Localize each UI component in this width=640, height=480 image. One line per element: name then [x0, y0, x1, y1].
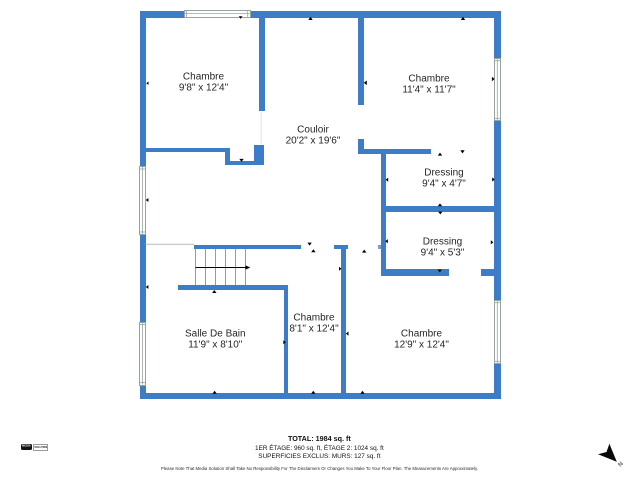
svg-text:N: N: [618, 461, 625, 468]
